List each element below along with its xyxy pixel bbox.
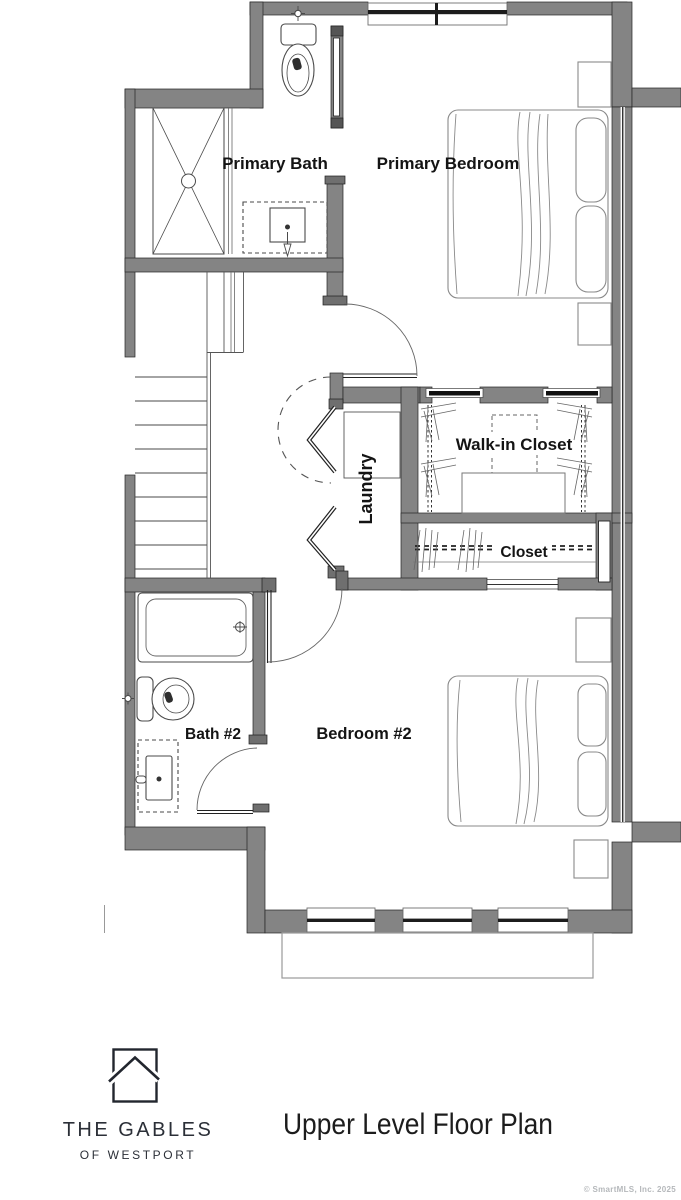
room-label-bath-2: Bath #2 xyxy=(185,726,241,743)
floor-plan-page: Primary Bath Primary Bedroom Walk-in Clo… xyxy=(0,0,681,1200)
floor-plan-drawing: Primary Bath Primary Bedroom Walk-in Clo… xyxy=(0,0,681,1200)
laundry-bifold-doors xyxy=(309,407,335,570)
bath2-door xyxy=(197,748,257,814)
room-label-primary-bath: Primary Bath xyxy=(222,154,328,173)
page-title: Upper Level Floor Plan xyxy=(283,1106,553,1140)
deck-outline xyxy=(282,933,593,978)
closet-dresser xyxy=(462,473,565,513)
brand-name: THE GABLES xyxy=(63,1119,214,1141)
bedroom2-door xyxy=(268,588,343,663)
house-outline-icon xyxy=(109,1050,159,1102)
hangers-left xyxy=(421,403,456,497)
window-bottom-2 xyxy=(403,908,472,932)
primary-bedroom-door xyxy=(343,304,417,378)
brand-subname: OF WESTPORT xyxy=(80,1148,196,1162)
sliding-door-left xyxy=(426,389,483,398)
bed-primary xyxy=(448,110,608,298)
vanity-bath2 xyxy=(136,740,178,812)
shower xyxy=(153,108,235,352)
window-bottom-1 xyxy=(307,908,375,932)
toilet-primary xyxy=(281,6,316,96)
room-label-primary-bedroom: Primary Bedroom xyxy=(377,154,520,173)
sliding-door-right xyxy=(543,389,600,398)
room-label-bedroom-2: Bedroom #2 xyxy=(316,725,411,743)
nightstand xyxy=(578,62,611,107)
brand-logo: THE GABLES OF WESTPORT xyxy=(63,1050,214,1163)
nightstand xyxy=(574,840,608,878)
party-wall-line xyxy=(621,107,625,822)
walls xyxy=(125,2,681,933)
copyright-notice: © SmartMLS, Inc. 2025 xyxy=(584,1185,676,1194)
stairs xyxy=(135,272,244,578)
nightstand xyxy=(576,618,611,662)
room-label-laundry: Laundry xyxy=(356,453,376,524)
pocket-door-leaf xyxy=(334,38,340,116)
closet-door-panel xyxy=(599,521,611,582)
room-label-closet: Closet xyxy=(500,544,547,561)
bathtub xyxy=(138,593,253,662)
vanity-primary xyxy=(243,202,327,256)
window-top xyxy=(368,3,507,25)
hall-door-swing-dashed xyxy=(278,377,331,483)
closet-sliding-opening xyxy=(487,580,558,590)
nightstand xyxy=(578,303,611,345)
window-bottom-3 xyxy=(498,908,568,932)
bed-2 xyxy=(448,676,608,826)
room-label-walk-in-closet: Walk-in Closet xyxy=(456,435,573,454)
primary-bedroom-furniture xyxy=(448,62,611,345)
bedroom2-furniture xyxy=(448,618,611,878)
